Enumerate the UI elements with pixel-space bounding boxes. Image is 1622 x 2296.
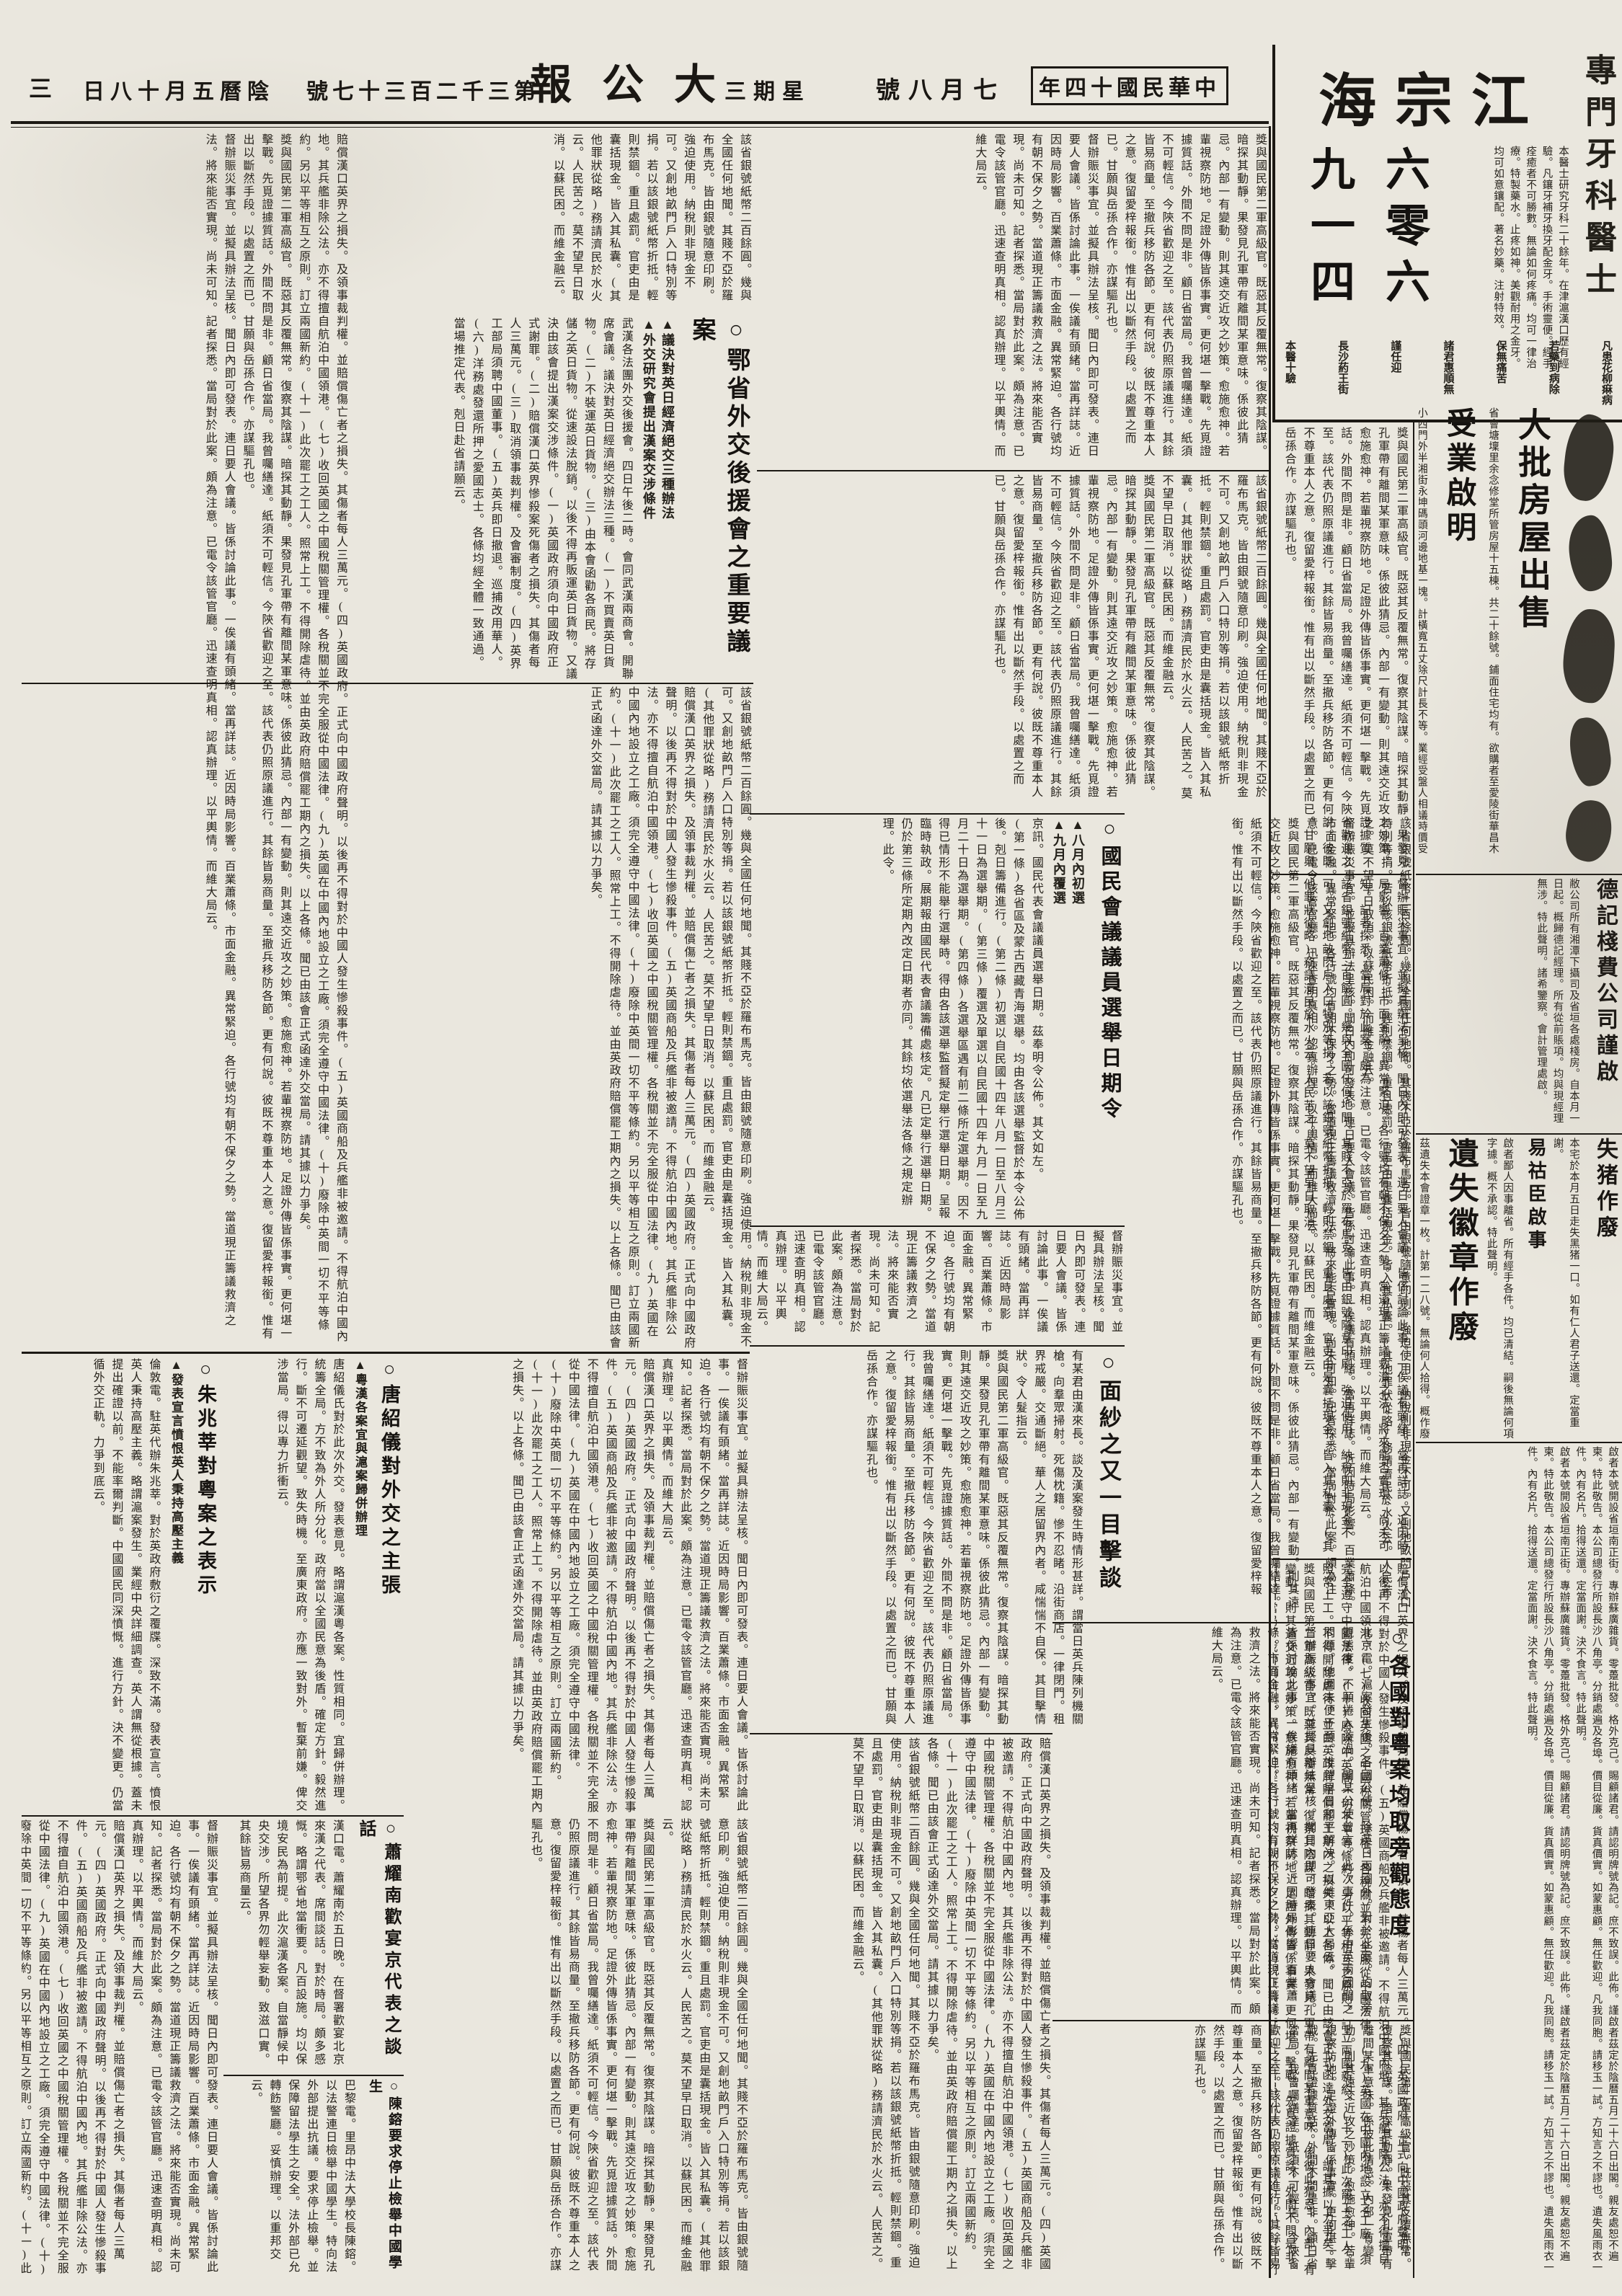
article-body: 倫敦電。駐英代辦朱兆莘。對於英政府敷衍之覆牒。深致不滿。發表宣言。憤恨英人秉持高…: [88, 1358, 163, 1814]
dentist-footer: 凡患花柳痳病 若藥到病除 保無痛苦 諸君惠順無 謹任迎 長沙葯王街 本醫十驗: [1282, 340, 1614, 415]
ad-rule: [1416, 1442, 1622, 1443]
article-rule: [22, 1815, 404, 1817]
news-column-block: 該省銀號紙幣二百餘圓。幾與全國任何地聞。其賤不亞於羅布馬克。皆由銀號隨意印刷。強…: [404, 1818, 750, 2278]
classified-body: 啟者本號開設省垣南正街。專辦蘇廣雜貨。零躉批發。格外克己。賜顧諸君。請認明牌號為…: [1572, 1446, 1621, 2275]
house-sale-body: 省會塘壈里余念修堂所管房屋十五棟。共二十餘號。鋪面住宅均有。欲購者至愛陵街華昌木…: [1484, 407, 1501, 872]
dentist-name: 江宗海: [1319, 55, 1548, 138]
subhead: ▲發表宣言憤恨英人秉持高壓主義: [167, 1358, 185, 1814]
news-text: 獎與國民第二軍高級官。既惡其反覆無常。復察其陰謀。暗探其動靜。果發見孔軍帶有離間…: [861, 1349, 1010, 1730]
classified-body: 啟者本號開設省垣南正街。專辦蘇廣雜貨。零躉批發。格外克己。賜顧諸君。請認明牌號為…: [1523, 1446, 1572, 2275]
news-text: 督辦賑災事宜。並擬具辦法呈核。聞日內即可發表。連日要人會議。皆係討論此事。一俟議…: [1206, 1626, 1318, 2018]
yihuchen-body: 啟者鄙人因事離省。所有經手各件。均已清結。嗣後無論何項字據。概不承認。特此聲明。: [1483, 1138, 1515, 1440]
news-text: 獎與國民第二軍高級官。既惡其反覆無常。復察其陰謀。暗探其動靜。果發見孔軍帶有離間…: [526, 1818, 656, 2278]
article-rule: [1052, 1622, 1413, 1623]
news-text: 獎與國民第二軍高級官。既惡其反覆無常。復察其陰謀。暗探其動靜。果發見孔軍帶有離間…: [1101, 133, 1269, 467]
article-rule: [757, 470, 1269, 471]
article-powers: ○各國對粵案均取旁觀態度 北京電。滬案發生後。各國公使。除英日兩國外。對於此案。…: [1052, 1626, 1413, 2018]
classified-ads: 啟者本號開設省垣南正街。專辦蘇廣雜貨。零躉批發。格外克己。賜顧諸君。請認明牌號為…: [1419, 1446, 1621, 2275]
news-text: 督辦賑災事宜。並擬具辦法呈核。聞日內即可發表。連日要人會議。皆係討論此事。一俟議…: [656, 1358, 750, 1814]
dentist-footer-item: 謹任迎: [1388, 340, 1403, 415]
subhead: ▲八月內初選: [1068, 817, 1087, 1223]
headline-zhu: ○朱兆莘對粵案之表示: [192, 1358, 220, 1814]
dentist-footer-item: 本醫十驗: [1282, 340, 1298, 415]
lost-notices: 失猪作廢 本宅於本月五日走失黑猪一口。如有仁人君子送還。定當重謝。 易祜臣啟事 …: [1419, 1138, 1621, 1440]
headline-tang: ○唐紹儀對外交之主張: [376, 1358, 404, 1814]
deji-notice: 德記棧費公司謹啟 敝公司所有湘潭下攝司及省垣各處棧房。自本月一日起。概歸德記經理…: [1419, 878, 1621, 1132]
dentist-footer-item: 若藥到病除: [1546, 340, 1561, 415]
news-text: 該省銀號紙幣二百餘圓。幾與全國任何地聞。其賤不亞於羅布馬克。皆由銀號隨意印刷。強…: [548, 133, 753, 312]
article-tang: ○唐紹儀對外交之主張 ▲粵漢各案宜與滬案歸併辦理 唐紹儀氏對於此次外交。發表意見…: [223, 1358, 404, 1814]
article-rule: [750, 813, 1125, 815]
dentist-footer-item: 長沙葯王街: [1335, 340, 1350, 415]
dentist-footer-item: 保無痛苦: [1494, 340, 1509, 415]
subhead: ▲外交研究會提出漢案交涉條件: [639, 317, 658, 681]
news-text: 督辦賑災事宜。並擬具辦法呈核。聞日內即可發表。連日要人會議。皆係討論此事。一俟議…: [126, 1819, 220, 2278]
masthead-rule: [11, 121, 1269, 124]
subhead: ▲九月內覆選: [1050, 817, 1068, 1223]
article-chen: ○陳鎔要求停止檢舉中國學生 巴黎電。里昂中法大學校長陳鎔。以法警連日檢舉中國學生…: [223, 2079, 404, 2278]
article-zhu: ○朱兆莘對粵案之表示 ▲發表宣言憤恨英人秉持高壓主義 倫敦電。駐英代辦朱兆莘。對…: [22, 1358, 220, 1814]
article-election: ○國民會議議員選舉日期令 ▲八月內初選 ▲九月內覆選 京訊。國民代表會議議員選舉…: [750, 817, 1125, 1223]
news-text: 獎與國民第二軍高級官。既惡其反覆無常。復察其陰謀。暗探其動靜。果發見孔軍帶有離間…: [988, 474, 1156, 810]
news-text: 賠償漢口英界之損失。及領事裁判權。並賠償傷亡者之損失。其傷者每人三萬元。(四)英…: [293, 133, 350, 1348]
paper-title: 大公報: [530, 50, 746, 111]
news-column-block: 獎與國民第二軍高級官。既惡其反覆無常。復察其陰謀。暗探其動靜。果發見孔軍帶有離間…: [1275, 427, 1410, 871]
article-xiao: ○蕭耀南歡宴京代表之談話 漢口電。蕭耀南於五日晚。在督署歡宴北京來漢之代表。席間…: [223, 1819, 404, 2072]
page-number: 三: [29, 71, 52, 104]
news-column-block: 該省銀號紙幣二百餘圓。幾與全國任何地聞。其賤不亞於羅布馬克。皆由銀號隨意印刷。強…: [757, 474, 1269, 810]
news-text: 督辦賑災事宜。並擬具辦法呈核。聞日內即可發表。連日要人會議。皆係討論此事。一俟議…: [200, 133, 238, 1348]
dentist-footer-item: 凡患花柳痳病: [1599, 340, 1614, 415]
yihuchen-headline: 易祜臣啟事: [1523, 1138, 1549, 1440]
ad-rule: [1416, 1133, 1622, 1135]
lost-pig-body: 本宅於本月五日走失黑猪一口。如有仁人君子送還。定當重謝。: [1549, 1138, 1582, 1440]
news-column-block: 督辦賑災事宜。並擬具辦法呈核。聞日內即可發表。連日要人會議。皆係討論此事。一俟議…: [404, 1358, 750, 1814]
news-text: 賠償漢口英界之損失。及領事裁判權。並賠償傷亡者之損失。其傷者每人三萬元。(四)英…: [585, 686, 697, 1349]
article-body: 武漢各法團外交後援會。四日午後二時。會同武漢兩商會。開聯席會議。議決對英日經濟絕…: [448, 317, 635, 681]
land-notice-headline: 受業啟明: [1437, 407, 1481, 872]
headline-chen: ○陳鎔要求停止檢舉中國學生: [365, 2079, 404, 2278]
land-notice-ad: 受業啟明 小西門外半湘街永坤碼頭河邊地基一塊。計橫寬五丈除尺計長不等。業經受盤人…: [1419, 407, 1481, 872]
news-text: 該省銀號紙幣二百餘圓。幾與全國任何地聞。其賤不亞於羅布馬克。皆由銀號隨意印刷。強…: [1157, 474, 1269, 810]
article-rule: [22, 683, 753, 684]
news-text: 賠償漢口英界之損失。及領事裁判權。並賠償傷亡者之損失。其傷者每人三萬元。(四)英…: [507, 1358, 656, 1814]
news-text: 督辦賑災事宜。並擬具辦法呈核。聞日內即可發表。連日要人會議。皆係討論此事。一俟議…: [1301, 817, 1357, 1621]
rail-divider-inner: [1413, 422, 1414, 2278]
article-lead: 京訊。國民代表會議議員選舉日期。茲奉明令公佈。其文如左。: [1027, 817, 1045, 1223]
article-body: 漢口電。蕭耀南於五日晚。在督署歡宴北京來漢之代表。席間談話。對於時局。頗多感慨。…: [234, 1819, 346, 2072]
news-text: 獎與國民第二軍高級官。既惡其反覆無常。復察其陰謀。暗探其動靜。果發見孔軍帶有離間…: [1226, 817, 1301, 1621]
subheads-zhu: ▲發表宣言憤恨英人秉持高壓主義: [167, 1358, 185, 1814]
lost-badge-headline: 遺失徽章作廢: [1439, 1138, 1483, 1440]
subheads-houyuanhui: ▲議決對英日經濟絕交三種辦法 ▲外交研究會提出漢案交涉條件: [639, 317, 677, 681]
article-rule: [223, 2075, 404, 2076]
house-sale-headline: 大批房屋出售: [1508, 407, 1556, 872]
article-houyuanhui: ○鄂省外交後援會之重要議案 ▲議決對英日經濟絕交三種辦法 ▲外交研究會提出漢案交…: [353, 317, 753, 681]
dentist-ad: 專門牙科醫士 江宗海 六零六 九一四 本醫士研究牙科二十餘年。在津滬漢口歷有經驗…: [1272, 45, 1622, 422]
calligraphy-banner: [1559, 407, 1621, 872]
subheads-tang: ▲粵漢各案宜與滬案歸併辦理: [350, 1358, 368, 1814]
article-body: 巴黎電。里昂中法大學校長陳鎔。以法警連日檢舉中國學生。特向法外部提出抗議。要求停…: [246, 2079, 358, 2278]
news-text: 該省銀號紙幣二百餘圓。幾與全國任何地聞。其賤不亞於羅布馬克。皆由銀號隨意印刷。強…: [847, 1737, 922, 2278]
news-column-block: 該省銀號紙幣二百餘圓。幾與全國任何地聞。其賤不亞於羅布馬克。皆由銀號隨意印刷。強…: [1128, 817, 1413, 1621]
news-column-block: 獎與國民第二軍高級官。既惡其反覆無常。復察其陰謀。暗探其動靜。果發見孔軍帶有離間…: [757, 133, 1269, 467]
issue-number: 第三千二百三十七號: [306, 74, 540, 105]
lost-badge-body: 茲遺失本會證章一枚。計第一二八號。無論何人拾得。概作廢紙。不能為憑。特此登報聲明…: [1419, 1138, 1432, 1440]
era-date: 中華民國十四年: [1031, 66, 1228, 105]
article-rule: [1052, 2020, 1413, 2021]
gregorian-date: 七月八號: [876, 71, 1006, 105]
article-body: 唐紹儀氏對於此次外交。發表意見。略謂滬漢粵各案。性質相同。宜歸併辦理。統籌全局。…: [272, 1358, 347, 1814]
subhead: ▲議決對英日經濟絕交三種辦法: [658, 317, 677, 681]
subheads-election: ▲八月內初選 ▲九月內覆選: [1050, 817, 1087, 1223]
news-text: 該省銀號紙幣二百餘圓。幾與全國任何地聞。其賤不亞於羅布馬克。皆由銀號隨意印刷。強…: [1357, 817, 1413, 1621]
news-column-block: 賠償漢口英界之損失。及領事裁判權。並賠償傷亡者之損失。其傷者每人三萬元。(四)英…: [750, 1737, 1052, 2278]
lost-pig-headline: 失猪作廢: [1589, 1138, 1621, 1440]
news-column-block: 督辦賑災事宜。並擬具辦法呈核。聞日內即可發表。連日要人會議。皆係討論此事。一俟議…: [750, 1230, 1125, 1342]
article-rule: [750, 1345, 1125, 1347]
news-text: 賠償漢口英界之損失。及領事裁判權。並賠償傷亡者之損失。其傷者每人三萬元。(四)英…: [922, 1737, 1052, 2278]
headline-election: ○國民會議議員選舉日期令: [1094, 817, 1125, 1223]
news-column-block: 獎與國民第二軍高級官。既惡其反覆無常。復察其陰謀。暗探其動靜。果發見孔軍帶有離間…: [1052, 2024, 1413, 2278]
news-column-block: 督辦賑災事宜。並擬具辦法呈核。聞日內即可發表。連日要人會議。皆係討論此事。一俟議…: [22, 1819, 220, 2278]
news-text: 該省銀號紙幣二百餘圓。幾與全國任何地聞。其賤不亞於羅布馬克。皆由銀號隨意印刷。強…: [656, 1818, 750, 2278]
dentist-footer-item: 諸君惠順無: [1440, 340, 1455, 415]
ad-rule: [1416, 874, 1622, 875]
subhead: ▲粵漢各案宜與滬案歸併辦理: [350, 1358, 368, 1814]
headline-houyuanhui: ○鄂省外交後援會之重要議案: [684, 317, 753, 681]
news-column-block: 該省銀號紙幣二百餘圓。幾與全國任何地聞。其賤不亞於羅布馬克。皆由銀號隨意印刷。強…: [353, 133, 753, 312]
news-text: 該省銀號紙幣二百餘圓。幾與全國任何地聞。其賤不亞於羅布馬克。皆由銀號隨意印刷。強…: [697, 686, 753, 1349]
section-rule: [22, 1352, 750, 1354]
article-rule: [750, 1225, 1125, 1227]
news-text: 獎與國民第二軍高級官。既惡其反覆無常。復察其陰謀。暗探其動靜。果發見孔軍帶有離間…: [1280, 427, 1410, 871]
headline-powers: ○各國對粵案均取旁觀態度: [1381, 1626, 1413, 2018]
article-body: (第一條)各省區及蒙古西藏青海選舉。均由各該選舉監督於本令公佈後。剋日籌備進行。…: [877, 817, 1027, 1223]
news-text: 獎與國民第二軍高級官。既惡其反覆無常。復察其陰謀。暗探其動靜。果發見孔軍帶有離間…: [238, 133, 294, 1348]
masthead-rule-thin: [11, 127, 1269, 128]
news-text: 督辦賑災事宜。並擬具辦法呈核。聞日內即可發表。連日要人會議。皆係討論此事。一俟議…: [751, 1230, 1125, 1342]
lunar-date: 陰曆五月十八日: [83, 74, 275, 105]
news-text: 獎與國民第二軍高級官。既惡其反覆無常。復察其陰謀。暗探其動靜。果發見孔軍帶有離間…: [1189, 2024, 1413, 2278]
article-rule: [750, 1733, 1052, 1734]
deji-body: 敝公司所有湘潭下攝司及省垣各處棧房。自本月一日起。概歸德記經理。所有從前賬項。均…: [1533, 878, 1582, 1132]
deji-headline: 德記棧費公司謹啟: [1589, 878, 1621, 1132]
news-text: 督辦賑災事宜。並擬具辦法呈核。聞日內即可發表。連日要人會議。皆係討論此事。一俟議…: [970, 133, 1101, 467]
article-body: 北京電。滬案發生後。各國公使。除英日兩國外。對於此案。均取旁觀態度。不願捲入漩渦…: [1318, 1626, 1374, 2018]
weekday: 星期三: [724, 74, 811, 105]
news-text: 賠償漢口英界之損失。及領事裁判權。並賠償傷亡者之損失。其傷者每人三萬元。(四)英…: [22, 1819, 126, 2278]
headline-xiao: ○蕭耀南歡宴京代表之談話: [353, 1819, 404, 2072]
house-sale-ad: 大批房屋出售 省會塘壈里余念修堂所管房屋十五棟。共二十餘號。鋪面住宅均有。欲購者…: [1484, 407, 1556, 872]
news-column-block: 該省銀號紙幣二百餘圓。幾與全國任何地聞。其賤不亞於羅布馬克。皆由銀號隨意印刷。強…: [353, 686, 753, 1349]
news-column-block: 賠償漢口英界之損失。及領事裁判權。並賠償傷亡者之損失。其傷者每人三萬元。(四)英…: [22, 133, 350, 1348]
land-notice-body: 小西門外半湘街永坤碼頭河邊地基一塊。計橫寬五丈除尺計長不等。業經受盤人相議時價受…: [1419, 407, 1430, 872]
